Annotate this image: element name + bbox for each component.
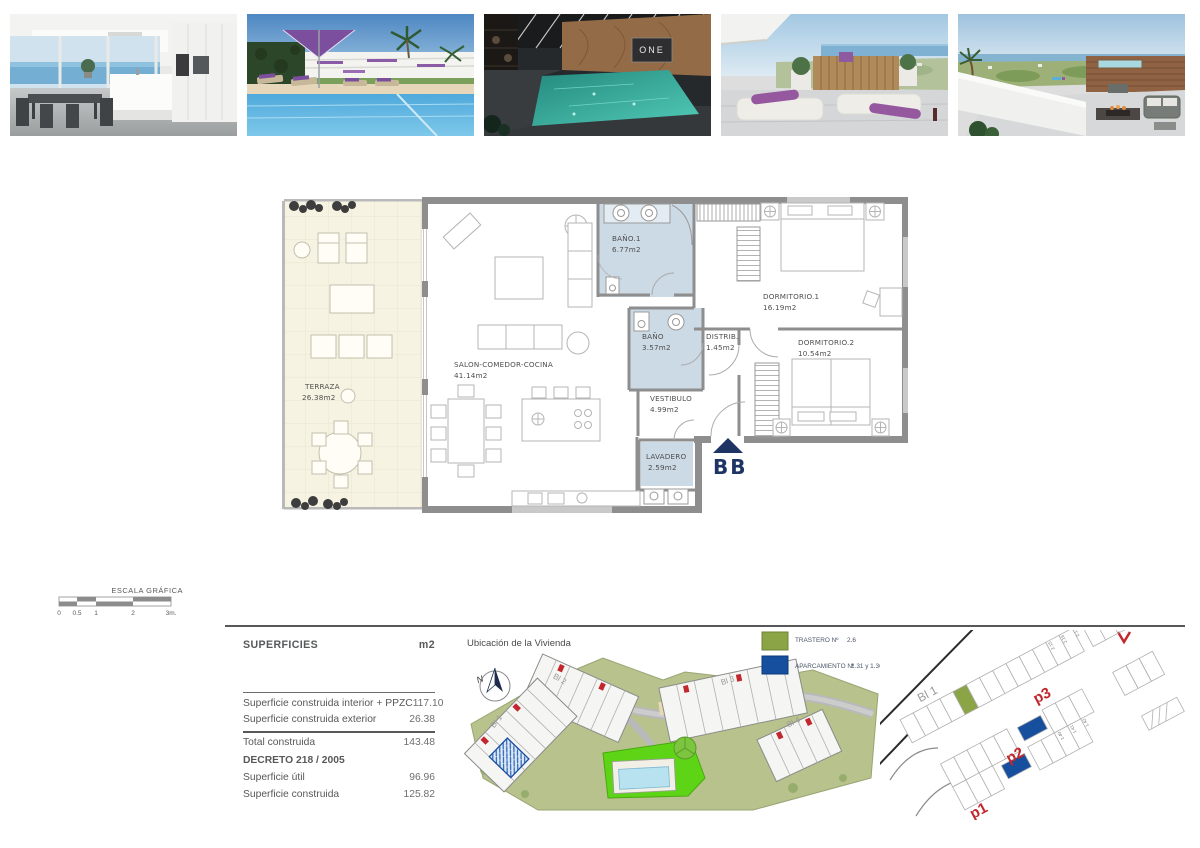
interior-kitchen-render (10, 14, 237, 136)
row-label: Superficie construida exterior (243, 714, 376, 725)
scale-tick-2: 2 (131, 610, 135, 617)
room-label-distrib: DISTRIB. (706, 332, 739, 341)
site-plan-title: Ubicación de la Vivienda (467, 638, 572, 649)
photo-exterior-pool (247, 14, 474, 136)
table-row: Superficie construida exterior 26.38 (243, 714, 435, 725)
row-label: Total construida (243, 737, 315, 748)
room-area-salon: 41.14m2 (454, 371, 488, 380)
room-area-vestibulo: 4.99m2 (650, 405, 679, 414)
photo-strip: ONE (10, 14, 1185, 136)
scale-tick-1: 1 (94, 610, 98, 617)
room-area-terraza: 26.38m2 (302, 393, 336, 402)
scale-ticks: 0 0.5 1 2 3m. (57, 610, 176, 617)
table-row: Superficie construida 125.82 (243, 789, 435, 800)
table-row-total: Total construida 143.48 (243, 737, 435, 748)
scale-tick-05: 0.5 (72, 610, 81, 617)
site-plan: Ubicación de la Vivienda N Bl 2 (453, 628, 883, 816)
entrance-marker: BB (713, 438, 748, 479)
legend-aparcamiento-swatch (762, 656, 788, 674)
site-legend: TRASTERO Nº 2.6 APARCAMIENTO Nº 1.31 y 1… (762, 632, 883, 674)
rooftop-render (958, 14, 1185, 136)
compass: N (475, 668, 510, 701)
scale-bar: ESCALA GRÁFICA 0 0.5 1 2 3m. (45, 584, 195, 620)
room-area-bano1: 6.77m2 (612, 245, 641, 254)
indoor-spa-render: ONE (484, 14, 711, 136)
spa-sign-text: ONE (639, 45, 665, 55)
room-label-lavadero: LAVADERO (646, 452, 686, 461)
scale-tick-0: 0 (57, 610, 61, 617)
parking-plan: Bl 1 p1 p2 p3 2.15 2.16 2.17 1.40 1.41 1… (880, 630, 1200, 820)
section-divider (225, 625, 1185, 627)
table-rule-thin (243, 692, 435, 693)
photo-indoor-spa: ONE (484, 14, 711, 136)
legend-aparcamiento-value: 1.31 y 1.36 (851, 663, 883, 670)
decree-label: DECRETO 218 / 2005 (243, 755, 345, 766)
row-value: 26.38 (409, 714, 435, 725)
surfaces-title: SUPERFICIES (243, 639, 318, 651)
row-value: 143.48 (404, 737, 436, 748)
room-area-dorm1: 16.19m2 (763, 303, 797, 312)
row-value: 125.82 (404, 789, 436, 800)
entrance-label: BB (713, 455, 748, 479)
photo-terrace-view (721, 14, 948, 136)
surfaces-table: SUPERFICIES m2 Superficie construida int… (243, 637, 435, 807)
room-label-salon: SALON-COMEDOR-COCINA (454, 360, 553, 369)
exterior-pool-render (247, 14, 474, 136)
row-value: 96.96 (409, 772, 435, 783)
room-label-dorm1: DORMITORIO.1 (763, 292, 819, 301)
legend-trastero-swatch (762, 632, 788, 650)
decree-row: DECRETO 218 / 2005 (243, 755, 435, 766)
room-area-lavadero: 2.59m2 (648, 463, 677, 472)
photo-rooftop-terrace (958, 14, 1185, 136)
row-label: Superficie construida interior + PPZC (243, 698, 413, 709)
table-rule-thick (243, 731, 435, 733)
legend-trastero-label: TRASTERO Nº (795, 637, 839, 644)
compass-n-label: N (475, 673, 485, 685)
scale-title: ESCALA GRÁFICA (111, 586, 183, 595)
brochure-page: ONE (0, 0, 1200, 848)
room-label-bano1: BAÑO.1 (612, 234, 641, 243)
room-label-vestibulo: VESTIBULO (650, 394, 692, 403)
room-label-bano: BAÑO (642, 332, 664, 341)
legend-aparcamiento-label: APARCAMIENTO Nº (795, 663, 855, 670)
row-label: Superficie útil (243, 772, 305, 783)
floor-plan: TERRAZA 26.38m2 SALON-COMEDOR-COCINA 41.… (282, 193, 908, 515)
photo-interior-kitchen (10, 14, 237, 136)
table-row: Superficie construida interior + PPZC 11… (243, 698, 435, 709)
terrace-view-render (721, 14, 948, 136)
surfaces-unit: m2 (419, 639, 435, 651)
room-area-bano: 3.57m2 (642, 343, 671, 352)
room-label-terraza: TERRAZA (304, 382, 340, 391)
legend-trastero-value: 2.6 (847, 637, 856, 644)
scale-segments (59, 597, 171, 606)
row-value: 117.10 (413, 698, 444, 709)
room-label-dorm2: DORMITORIO.2 (798, 338, 854, 347)
scale-tick-3m: 3m. (166, 610, 177, 617)
surfaces-header: SUPERFICIES m2 (243, 639, 435, 651)
room-area-distrib: 1.45m2 (706, 343, 735, 352)
room-area-dorm2: 10.54m2 (798, 349, 832, 358)
row-label: Superficie construida (243, 789, 339, 800)
table-row: Superficie útil 96.96 (243, 772, 435, 783)
